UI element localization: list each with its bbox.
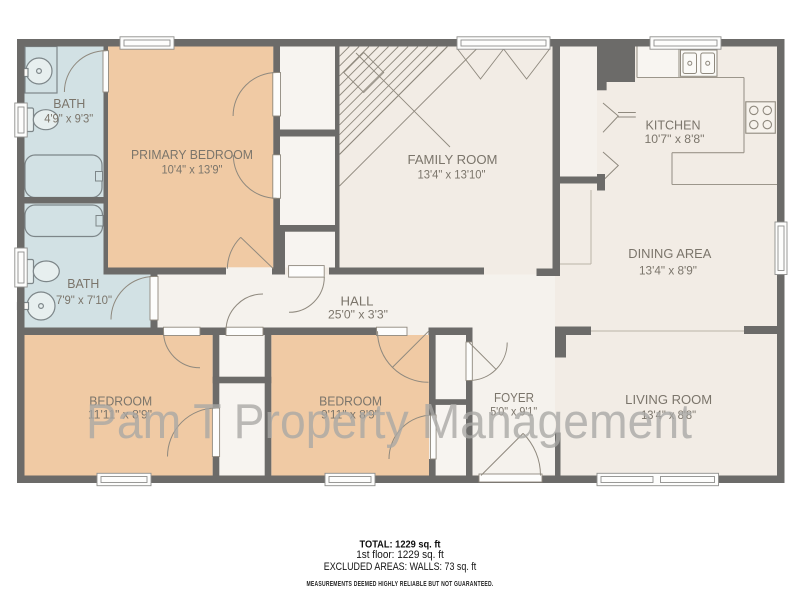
svg-text:1st floor: 1229 sq. ft: 1st floor: 1229 sq. ft <box>356 549 444 561</box>
svg-text:BATH: BATH <box>67 276 99 291</box>
svg-text:EXCLUDED AREAS: WALLS: 73 sq.: EXCLUDED AREAS: WALLS: 73 sq. ft <box>324 561 477 573</box>
svg-text:HALL: HALL <box>341 293 374 308</box>
svg-text:7'9" x 7'10": 7'9" x 7'10" <box>56 295 112 307</box>
svg-text:10'7" x 8'8": 10'7" x 8'8" <box>645 134 705 146</box>
svg-text:Pam T Property Management: Pam T Property Management <box>86 395 692 449</box>
svg-text:FAMILY ROOM: FAMILY ROOM <box>408 152 498 167</box>
svg-text:25'0" x 3'3": 25'0" x 3'3" <box>328 310 388 322</box>
svg-text:KITCHEN: KITCHEN <box>646 118 701 133</box>
svg-text:BATH: BATH <box>53 96 85 111</box>
svg-text:13'4" x 13'10": 13'4" x 13'10" <box>418 170 486 182</box>
svg-text:MEASUREMENTS DEEMED HIGHLY REL: MEASUREMENTS DEEMED HIGHLY RELIABLE BUT … <box>307 581 494 588</box>
svg-text:DINING AREA: DINING AREA <box>628 246 711 261</box>
svg-text:10'4" x 13'9": 10'4" x 13'9" <box>162 165 223 177</box>
svg-text:4'9" x 9'3": 4'9" x 9'3" <box>44 113 93 125</box>
svg-text:PRIMARY BEDROOM: PRIMARY BEDROOM <box>131 147 253 162</box>
svg-text:13'4" x 8'9": 13'4" x 8'9" <box>639 266 697 278</box>
